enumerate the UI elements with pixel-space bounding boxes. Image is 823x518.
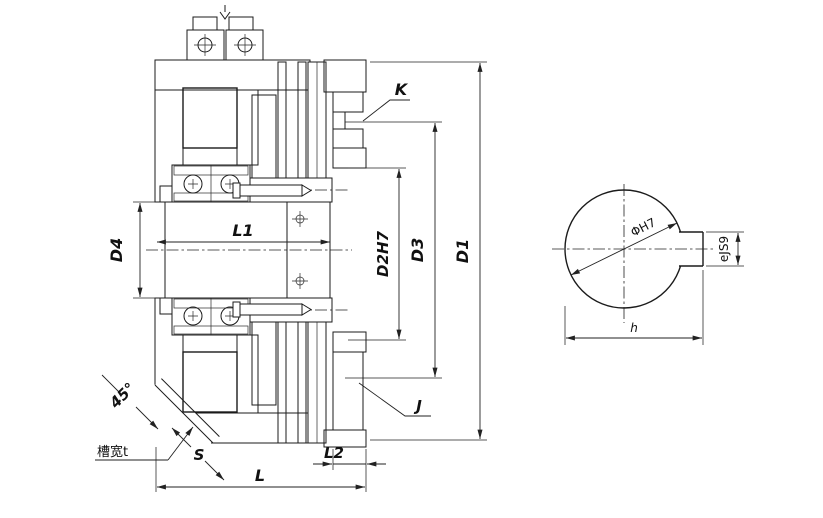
- dim-label-k: K: [395, 80, 409, 99]
- dim-k: K: [363, 80, 410, 121]
- dim-label-l: L: [255, 466, 265, 485]
- dim-label-d3: D3: [408, 238, 427, 262]
- dim-label-ejs9: eJS9: [717, 236, 731, 262]
- dim-label-45: 45°: [105, 379, 138, 412]
- excitation-coil-lower: [183, 352, 237, 412]
- main-section-view: D4 L1 D2H7 D3: [95, 5, 487, 492]
- friction-disc-stack-upper: [278, 62, 326, 178]
- dim-j: J: [359, 383, 431, 416]
- dim-label-s: S: [194, 446, 205, 464]
- dim-l2: L2: [313, 444, 386, 470]
- k-groove: [345, 112, 363, 129]
- dim-label-d4: D4: [107, 238, 126, 262]
- dim-label-d2h7: D2H7: [374, 231, 392, 277]
- terminal-block: [187, 5, 263, 60]
- excitation-coil-upper: [183, 88, 237, 148]
- dim-d3: D3: [345, 122, 442, 378]
- dim-label-h: h: [630, 321, 638, 335]
- technical-drawing-page: D4 L1 D2H7 D3: [0, 0, 823, 518]
- chamfer-corner-slot: [154, 379, 310, 444]
- dim-label-l2: L2: [324, 444, 344, 462]
- dim-label-l1: L1: [232, 221, 253, 240]
- dim-angle-45: 45°: [102, 375, 158, 429]
- dim-label-phi-h7: ΦH7: [628, 215, 658, 239]
- friction-disc-stack-lower: [278, 322, 326, 443]
- dim-label-j: J: [413, 397, 422, 415]
- dim-d2h7: D2H7: [348, 168, 406, 340]
- clutch-engineering-drawing: D4 L1 D2H7 D3: [0, 0, 823, 518]
- dim-label-slot-width: 槽宽t: [97, 444, 128, 460]
- detail-section-view: ΦH7 eJS9 h: [552, 184, 744, 345]
- dim-label-d1: D1: [453, 239, 472, 263]
